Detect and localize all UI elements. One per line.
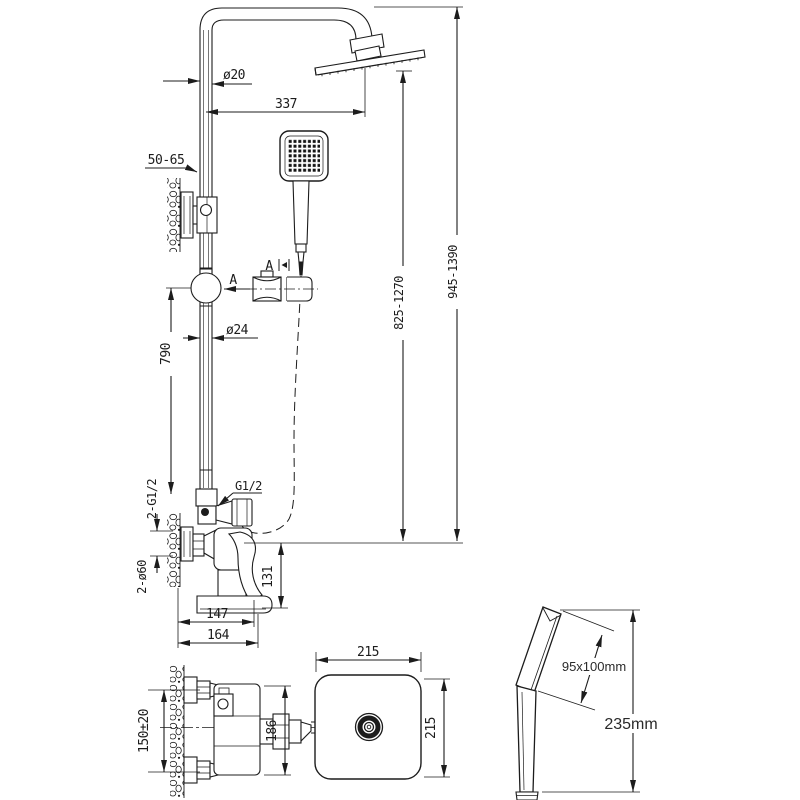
dim-wall-offset <box>145 168 197 172</box>
label-body-width: 147 <box>206 607 228 622</box>
dim-hand-total-length <box>542 610 640 792</box>
slider-knob <box>191 269 221 303</box>
plan-view-wall <box>170 665 184 798</box>
dim-riser-length <box>166 288 191 494</box>
hand-shower-side-view <box>516 607 561 800</box>
label-head-width: 215 <box>357 645 379 660</box>
lower-wall <box>167 513 180 587</box>
rotation-arrow-icon <box>279 259 289 271</box>
label-height-head: 945-1390 <box>446 245 460 299</box>
technical-drawing-page: ø20 337 50-65 790 ø24 A A 825-1270 945-1… <box>0 0 800 800</box>
label-height-outlet: 825-1270 <box>392 276 406 330</box>
label-riser-length: 790 <box>159 343 174 365</box>
label-body-depth: 186 <box>265 720 280 742</box>
upper-wall-bracket <box>181 192 217 238</box>
label-detail-view: A <box>265 259 273 274</box>
hand-shower-front <box>280 131 328 275</box>
label-pipe-diameter-mid: ø24 <box>226 323 249 338</box>
label-escutcheons: 2-ø60 <box>135 560 149 594</box>
label-wall-offset: 50-65 <box>148 153 185 168</box>
dim-height-head <box>244 7 463 543</box>
label-spout-drop: 131 <box>261 566 276 588</box>
label-hand-head-size: 95x100mm <box>562 659 626 674</box>
shower-hose <box>239 276 301 533</box>
rain-shower-head <box>315 34 425 76</box>
label-head-depth: 215 <box>424 717 439 739</box>
label-outlet-thread: G1/2 <box>235 479 262 493</box>
label-inlet-threads: 2-G1/2 <box>145 479 159 520</box>
plan-view-head <box>315 675 421 779</box>
slide-holder-detail <box>246 259 318 301</box>
label-inlet-spacing: 150±20 <box>137 709 152 753</box>
label-hand-total-length: 235mm <box>604 716 657 733</box>
technical-drawing-canvas: ø20 337 50-65 790 ø24 A A 825-1270 945-1… <box>0 0 800 800</box>
label-arm-length: 337 <box>275 97 297 112</box>
mixer-body-front <box>181 527 272 613</box>
label-body-width-total: 164 <box>207 628 230 643</box>
outlet-tee <box>196 489 252 526</box>
label-pipe-diameter-top: ø20 <box>223 68 245 83</box>
label-section-arrow: A <box>229 273 237 288</box>
upper-wall <box>167 178 180 252</box>
